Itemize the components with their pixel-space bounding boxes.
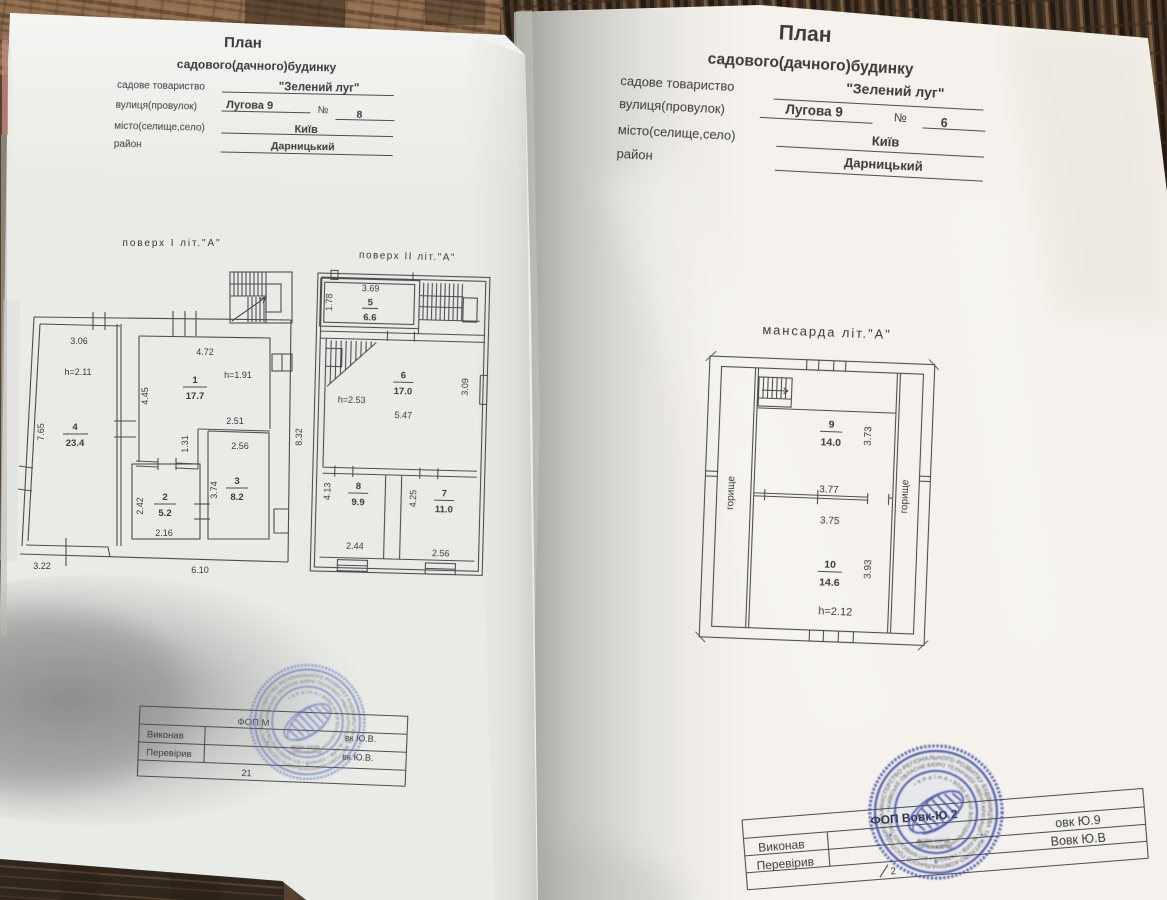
svg-text:2.42: 2.42 xyxy=(135,497,145,515)
svg-text:h=2.11: h=2.11 xyxy=(64,367,91,377)
svg-text:5.47: 5.47 xyxy=(394,410,412,420)
svg-text:6.10: 6.10 xyxy=(191,565,209,575)
svg-text:9.9: 9.9 xyxy=(351,497,365,508)
svg-text:4.72: 4.72 xyxy=(196,347,214,357)
svg-text:14.6: 14.6 xyxy=(819,576,840,589)
svg-text:3.77: 3.77 xyxy=(819,484,839,496)
svg-text:Перевірив: Перевірив xyxy=(146,747,192,760)
svg-text:4: 4 xyxy=(72,422,78,433)
svg-text:6: 6 xyxy=(401,370,407,381)
svg-text:Лугова 9: Лугова 9 xyxy=(226,99,273,112)
svg-text:7: 7 xyxy=(441,488,447,499)
svg-text:4.45: 4.45 xyxy=(140,387,150,405)
svg-text:План: План xyxy=(778,21,832,47)
svg-text:8: 8 xyxy=(356,481,362,492)
svg-text:2.56: 2.56 xyxy=(432,548,450,558)
svg-text:10: 10 xyxy=(824,559,836,571)
svg-text:Дарницький: Дарницький xyxy=(271,140,335,153)
svg-text:План: План xyxy=(224,34,262,52)
svg-text:3.69: 3.69 xyxy=(362,283,380,293)
svg-text:21: 21 xyxy=(241,768,251,778)
svg-text:8: 8 xyxy=(356,109,362,121)
svg-text:3: 3 xyxy=(234,476,239,487)
svg-text:2.44: 2.44 xyxy=(346,541,364,551)
svg-text:"Зелений луг": "Зелений луг" xyxy=(279,81,360,95)
svg-text:h=2.12: h=2.12 xyxy=(818,605,852,618)
svg-text:11.0: 11.0 xyxy=(435,504,453,515)
svg-text:1.78: 1.78 xyxy=(324,293,334,311)
svg-text:горище: горище xyxy=(725,475,737,510)
svg-text:4.13: 4.13 xyxy=(322,482,332,500)
svg-text:3.09: 3.09 xyxy=(460,378,470,396)
svg-text:2.16: 2.16 xyxy=(155,528,173,538)
svg-text:1: 1 xyxy=(192,375,198,386)
svg-text:3.74: 3.74 xyxy=(209,481,219,499)
svg-text:3.93: 3.93 xyxy=(863,559,875,579)
svg-text:№: № xyxy=(894,110,908,125)
svg-text:17.0: 17.0 xyxy=(394,386,413,397)
svg-text:Лугова 9: Лугова 9 xyxy=(785,102,843,120)
svg-text:h=2.53: h=2.53 xyxy=(338,395,366,406)
svg-text:6.6: 6.6 xyxy=(363,312,377,323)
svg-text:8.32: 8.32 xyxy=(294,428,304,446)
svg-text:17.7: 17.7 xyxy=(186,391,205,402)
svg-text:Виконав: Виконав xyxy=(147,729,184,741)
svg-text:23.4: 23.4 xyxy=(66,438,85,449)
svg-text:2: 2 xyxy=(162,492,167,503)
svg-text:поверх І літ."А": поверх І літ."А" xyxy=(123,238,222,249)
svg-text:3.75: 3.75 xyxy=(820,515,840,527)
svg-text:горище: горище xyxy=(899,479,911,514)
svg-text:район: район xyxy=(114,139,142,151)
svg-text:2.56: 2.56 xyxy=(231,441,249,451)
svg-text:4.25: 4.25 xyxy=(408,490,418,508)
svg-text:вулиця(провулок): вулиця(провулок) xyxy=(116,100,198,113)
svg-text:7.65: 7.65 xyxy=(36,423,46,441)
svg-text:14.0: 14.0 xyxy=(820,436,841,449)
svg-text:1.31: 1.31 xyxy=(180,435,190,453)
svg-text:5: 5 xyxy=(367,297,373,308)
svg-text:2.51: 2.51 xyxy=(226,416,244,426)
svg-text:5.2: 5.2 xyxy=(158,508,171,519)
svg-text:3.22: 3.22 xyxy=(33,561,51,571)
svg-text:h=1.91: h=1.91 xyxy=(224,370,252,380)
svg-text:садове товариство: садове товариство xyxy=(117,80,205,93)
svg-text:3.06: 3.06 xyxy=(70,336,88,346)
svg-text:3.73: 3.73 xyxy=(863,426,875,446)
svg-text:8.2: 8.2 xyxy=(230,492,243,503)
svg-text:6: 6 xyxy=(940,116,948,130)
svg-text:9: 9 xyxy=(828,419,834,431)
svg-text:№: № xyxy=(317,105,328,116)
svg-text:Київ: Київ xyxy=(871,133,899,149)
svg-text:район: район xyxy=(616,146,653,163)
svg-text:місто(селище,село): місто(селище,село) xyxy=(114,121,205,134)
